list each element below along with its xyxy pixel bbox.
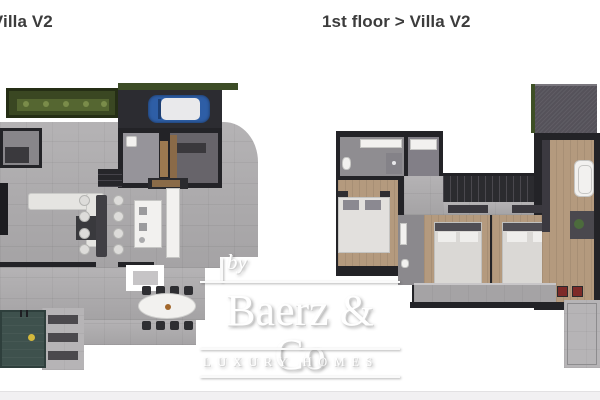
cabinet-wood — [152, 180, 180, 187]
washer — [126, 136, 137, 147]
headboard — [435, 223, 481, 231]
left-plan-title: or > Villa V2 — [0, 12, 53, 32]
patio-chair — [142, 321, 151, 330]
workbench — [176, 143, 206, 153]
hallway-floor — [542, 140, 594, 302]
wardrobe — [410, 139, 437, 150]
counter — [542, 140, 550, 232]
dining-chair — [79, 211, 90, 222]
staircase — [443, 176, 534, 202]
dining-chair — [113, 195, 124, 206]
plant-icon — [101, 101, 107, 107]
patio-table — [138, 293, 196, 319]
dining-chair — [79, 228, 90, 239]
red-lounge-chair — [557, 286, 568, 297]
wood-door — [160, 141, 168, 177]
balcony-wall — [410, 302, 560, 308]
car — [148, 95, 210, 123]
red-lounge-chair — [572, 286, 583, 297]
toilet — [401, 259, 409, 268]
car-roof — [161, 98, 200, 120]
bottom-band — [0, 391, 600, 400]
pillow — [460, 232, 478, 242]
plant-icon — [23, 101, 29, 107]
facade-wall — [0, 262, 96, 267]
kitchen-island — [134, 200, 162, 248]
pillow — [507, 232, 527, 242]
sink — [139, 223, 147, 231]
island-stool — [139, 237, 145, 243]
patio-chair — [184, 321, 193, 330]
tv-unit — [0, 183, 8, 235]
table-centerpiece — [165, 304, 171, 310]
laundry-room — [123, 133, 159, 183]
patio-chair — [184, 286, 193, 295]
dining-table — [96, 195, 107, 257]
side-room — [0, 128, 42, 168]
car-windshield — [158, 99, 161, 119]
staircase — [98, 169, 122, 187]
shelf — [170, 135, 177, 179]
bed — [434, 222, 482, 284]
corridor — [404, 176, 443, 215]
door-mat — [133, 271, 158, 285]
pillow — [365, 200, 381, 210]
desk-chair-green — [574, 219, 584, 229]
bathtub — [574, 160, 594, 197]
cooktop — [139, 207, 147, 215]
sun-lounger — [48, 351, 78, 360]
patio-chair — [170, 321, 179, 330]
corner-terrace — [564, 300, 600, 368]
pool — [0, 310, 46, 368]
bedroom-mid-floor — [424, 215, 490, 293]
patio-chair — [142, 286, 151, 295]
roof-section — [535, 84, 597, 133]
sun-lounger — [48, 333, 78, 342]
pillow — [343, 200, 359, 210]
closet-room — [408, 137, 439, 176]
shower-drain — [392, 161, 396, 165]
shower — [386, 153, 402, 174]
floorplan-screenshot: or > Villa V2 1st floor > Villa V2 — [0, 0, 600, 400]
bedroom-left-floor — [338, 180, 398, 266]
desk — [570, 211, 594, 239]
sun-lounger — [48, 315, 78, 324]
double-sink — [360, 139, 402, 148]
planter-garden — [6, 88, 118, 118]
plant-icon — [63, 101, 69, 107]
bathtub-inner — [578, 165, 592, 194]
floor-plan-left — [0, 83, 260, 378]
pillow — [438, 232, 456, 242]
pool-float — [28, 334, 35, 341]
floor-cutout — [220, 257, 258, 268]
balcony — [414, 283, 556, 304]
dining-chair — [79, 195, 90, 206]
roof-edge-green — [118, 83, 238, 90]
dining-chair — [79, 244, 90, 255]
desk — [5, 147, 29, 163]
storage-room — [170, 133, 218, 183]
floor-plan-right — [336, 83, 600, 378]
ensuite-bath — [398, 215, 424, 285]
terrace-border — [567, 303, 597, 365]
sink — [400, 223, 407, 245]
pool-ladder — [26, 310, 28, 317]
patio-chair — [156, 321, 165, 330]
dining-chair — [113, 244, 124, 255]
kitchen-counter — [166, 188, 180, 258]
plant-icon — [83, 101, 89, 107]
dining-chair — [113, 211, 124, 222]
bathroom — [340, 137, 404, 176]
bed — [338, 197, 390, 253]
right-plan-title: 1st floor > Villa V2 — [322, 12, 471, 32]
plant-icon — [43, 101, 49, 107]
dining-chair — [113, 228, 124, 239]
dresser — [448, 205, 488, 213]
pool-ladder — [20, 310, 22, 317]
toilet — [342, 157, 351, 170]
